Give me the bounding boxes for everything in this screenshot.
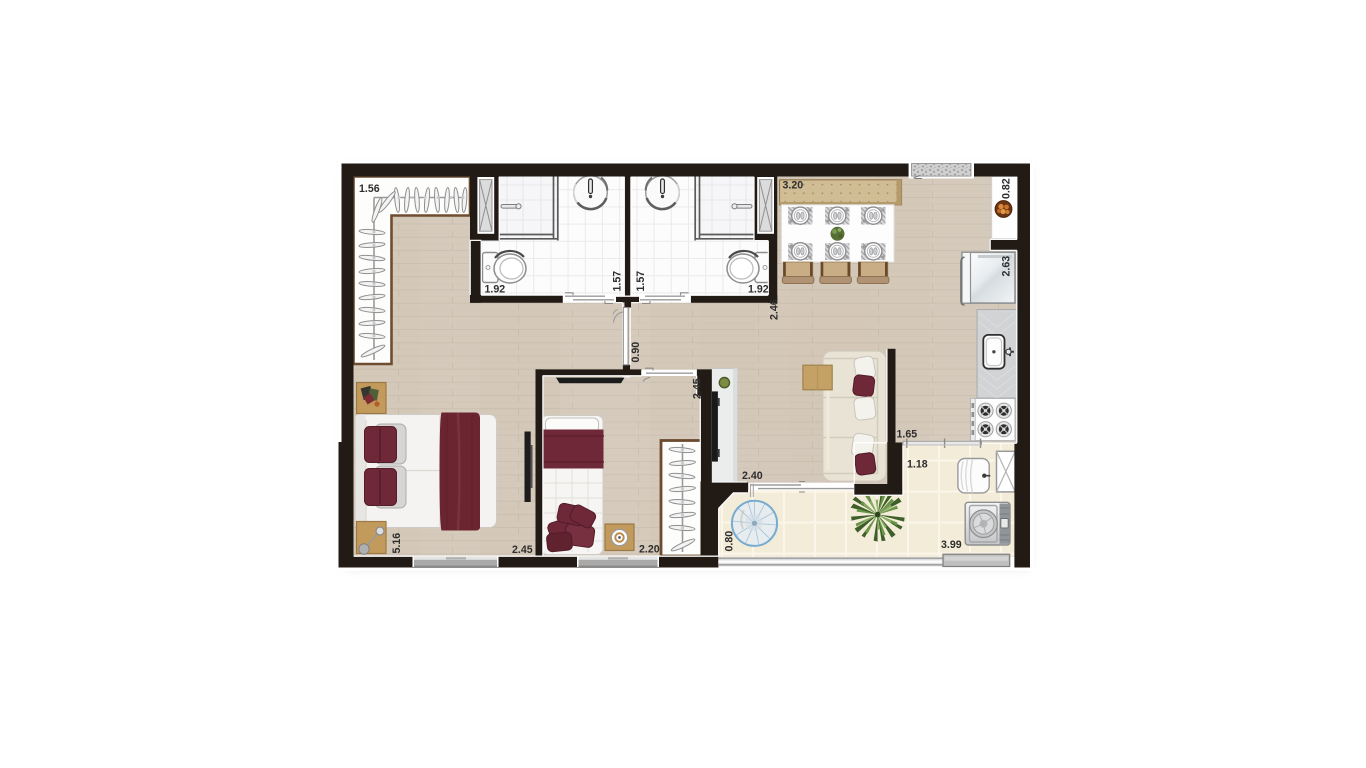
svg-text:0.80: 0.80 (724, 531, 736, 552)
svg-text:2.63: 2.63 (1001, 256, 1013, 277)
svg-text:1.56: 1.56 (359, 183, 380, 195)
svg-text:1.18: 1.18 (907, 459, 928, 471)
svg-text:2.46: 2.46 (769, 299, 781, 320)
svg-text:2.20: 2.20 (639, 544, 660, 556)
svg-text:3.99: 3.99 (941, 539, 962, 551)
svg-text:1.57: 1.57 (612, 271, 624, 292)
svg-text:2.45: 2.45 (692, 378, 704, 399)
svg-text:0.90: 0.90 (630, 342, 642, 363)
svg-text:2.40: 2.40 (742, 470, 763, 482)
svg-text:1.57: 1.57 (635, 271, 647, 292)
svg-text:3.20: 3.20 (783, 180, 804, 192)
svg-text:2.45: 2.45 (512, 544, 533, 556)
svg-text:0.82: 0.82 (1001, 178, 1013, 199)
svg-text:1.65: 1.65 (897, 429, 918, 441)
svg-text:1.92: 1.92 (485, 284, 506, 296)
svg-text:5.16: 5.16 (391, 533, 403, 554)
svg-text:1.92: 1.92 (748, 284, 769, 296)
